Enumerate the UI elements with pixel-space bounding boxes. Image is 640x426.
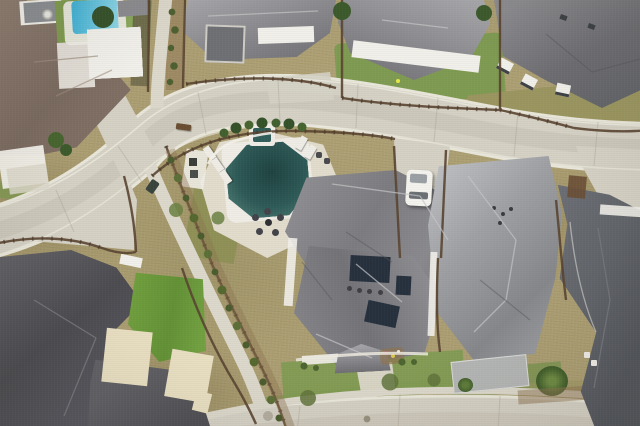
wood-fences bbox=[0, 0, 640, 426]
trail-shrub-row bbox=[167, 156, 282, 421]
poolA-tree bbox=[92, 6, 114, 28]
tree-top-center bbox=[333, 2, 351, 20]
front-shrub-2 bbox=[313, 365, 319, 371]
street-tree-1 bbox=[300, 390, 316, 406]
front-shrub-4 bbox=[411, 359, 417, 365]
details-layer bbox=[0, 0, 640, 426]
street-tree-2 bbox=[382, 374, 399, 391]
bush-cluster-a bbox=[48, 132, 64, 148]
roof-ridges-light bbox=[208, 11, 516, 358]
aerial-neighborhood-photo bbox=[0, 0, 640, 426]
roof-ridges-misc bbox=[34, 56, 610, 416]
tree-top-right bbox=[476, 5, 492, 21]
corridor-top-bushes bbox=[167, 9, 179, 86]
pool-yard-white-wall bbox=[208, 133, 272, 164]
front-shrub-3 bbox=[398, 358, 405, 365]
street-tree-3 bbox=[428, 374, 441, 387]
manhole-cover bbox=[364, 416, 371, 423]
roof-ridges-dark bbox=[302, 34, 640, 320]
street-stain bbox=[263, 411, 273, 421]
center-front-wall bbox=[296, 353, 428, 360]
front-shrub-1 bbox=[300, 362, 307, 369]
